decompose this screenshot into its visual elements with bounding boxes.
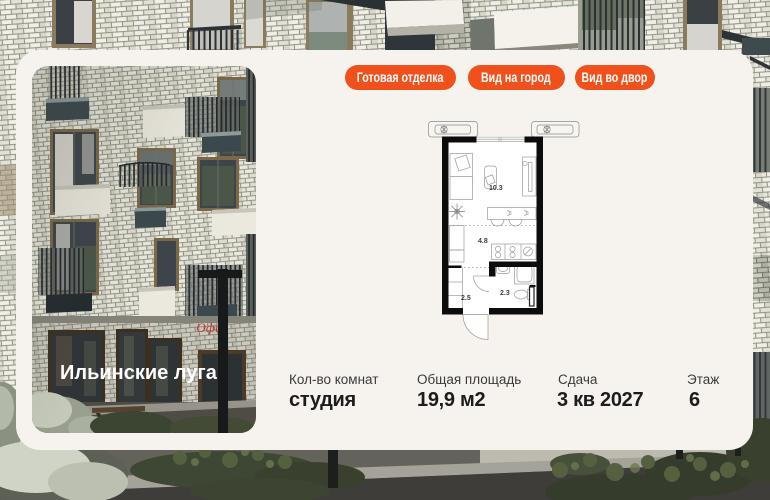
svg-text:2.5: 2.5 — [461, 295, 471, 302]
svg-text:10.3: 10.3 — [489, 185, 503, 192]
svg-text:4.8: 4.8 — [478, 238, 488, 245]
svg-text:2.3: 2.3 — [500, 290, 510, 297]
